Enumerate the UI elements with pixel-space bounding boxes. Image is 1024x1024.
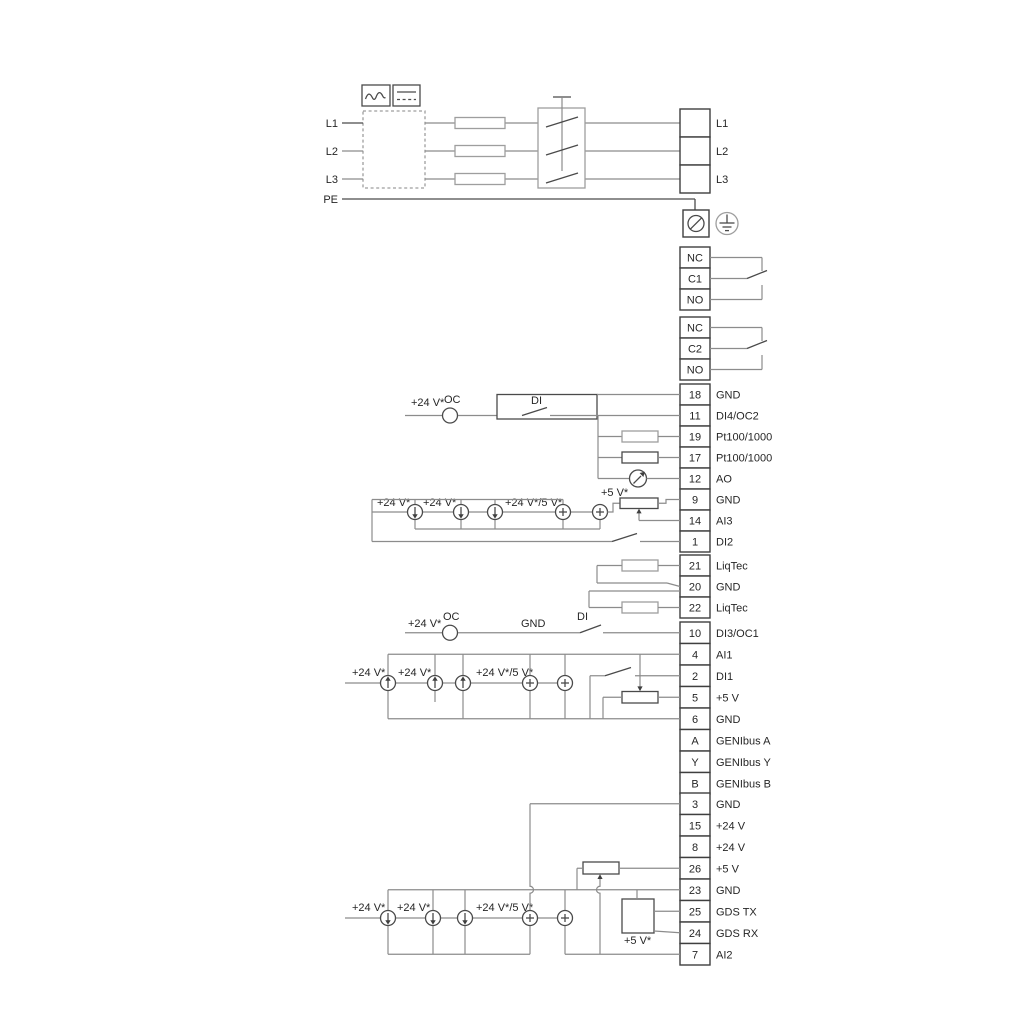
output-label-l2: L2 — [716, 146, 728, 158]
terminal-label: AO — [716, 474, 732, 486]
output-label-l1: L1 — [716, 118, 728, 130]
relay2-c2: C2 — [688, 344, 702, 356]
terminal-label: AI1 — [716, 649, 733, 661]
output-label-l3: L3 — [716, 174, 728, 186]
v24-label: +24 V* — [377, 497, 411, 509]
v24-label: +24 V* — [398, 667, 432, 679]
input-label-l1: L1 — [326, 118, 338, 130]
fuse-l2 — [455, 146, 505, 157]
terminal-label: Pt100/1000 — [716, 453, 772, 465]
v24-label: +24 V* — [423, 497, 457, 509]
input-label-l2: L2 — [326, 146, 338, 158]
ai1-sensor-group: +24 V* +24 V* +24 V*/5 V* — [345, 654, 680, 719]
wiring-diagram: L1 L2 L3 PE — [0, 0, 1024, 1024]
terminal-label: GND — [716, 885, 741, 897]
mains-input-section: L1 L2 L3 PE — [323, 85, 738, 237]
terminal-num: 14 — [689, 516, 701, 528]
current-source-plus-icon — [556, 505, 571, 520]
io-terminal-strip-b: 10 4 2 5 6 A Y B DI3/OC1 AI1 DI1 +5 V GN… — [680, 622, 771, 794]
io-terminal-strip-c: 3 15 8 26 23 25 24 7 GND +24 V +24 V +5 … — [680, 793, 759, 965]
current-source-up-icon — [428, 676, 443, 691]
terminal-num: A — [691, 735, 699, 747]
terminal-num: Y — [691, 757, 699, 769]
di3-switch — [580, 625, 601, 633]
ai3-sensor-group: +24 V* +24 V* +24 V*/5 V* +5 V* — [372, 487, 680, 542]
terminal-num: 7 — [692, 949, 698, 961]
mains-terminal-block — [680, 109, 710, 193]
relay1-block: NC C1 NO — [680, 247, 767, 310]
terminal-num: 12 — [689, 474, 701, 486]
relay1-c1: C1 — [688, 274, 702, 286]
v24-label: +24 V* — [411, 397, 445, 409]
v24-label: +24 V* — [352, 902, 386, 914]
current-source-down-icon — [381, 911, 396, 926]
terminal-label: Pt100/1000 — [716, 432, 772, 444]
v24-label: +24 V* — [352, 667, 386, 679]
terminal-label: DI3/OC1 — [716, 628, 759, 640]
terminal-label: DI1 — [716, 671, 733, 683]
relay2-block: NC C2 NO — [680, 317, 767, 380]
relay1-contact — [710, 258, 767, 300]
current-source-down-icon — [454, 505, 469, 520]
terminal-num: 22 — [689, 603, 701, 615]
v24-label: +24 V* — [397, 902, 431, 914]
terminal-label: AI3 — [716, 516, 733, 528]
screw-terminal-icon — [683, 210, 709, 237]
open-collector-icon — [443, 625, 458, 640]
terminal-num: 4 — [692, 649, 698, 661]
current-source-plus-icon — [523, 676, 538, 691]
terminal-label: GND — [716, 390, 741, 402]
terminal-num: 8 — [692, 842, 698, 854]
terminal-num: 20 — [689, 582, 701, 594]
oc-label: OC — [444, 394, 461, 406]
terminal-num: 1 — [692, 537, 698, 549]
terminal-num: 17 — [689, 453, 701, 465]
pt100-sensor-1 — [622, 431, 658, 442]
terminal-num: 23 — [689, 885, 701, 897]
v24-label: +24 V* — [408, 618, 442, 630]
gds-sensor-box — [622, 899, 654, 933]
terminal-num: 11 — [689, 411, 700, 423]
terminal-num: 19 — [689, 432, 701, 444]
liqtec-strip: 21 20 22 LiqTec GND LiqTec — [589, 555, 748, 618]
pt100-sensor-2 — [622, 452, 658, 463]
v24v5-label: +24 V*/5 V* — [505, 497, 563, 509]
relay1-nc: NC — [687, 253, 703, 265]
terminal-num: 26 — [689, 863, 701, 875]
terminal-num: 6 — [692, 714, 698, 726]
current-source-down-icon — [426, 911, 441, 926]
terminal-num: 15 — [689, 820, 701, 832]
terminal-label: DI2 — [716, 537, 733, 549]
di3-oc1-wiring: +24 V* OC GND DI — [405, 611, 680, 640]
gnd-label: GND — [521, 618, 546, 630]
terminal-label: GDS RX — [716, 928, 759, 940]
terminal-label: LiqTec — [716, 603, 748, 615]
terminal-num: B — [691, 778, 698, 790]
potentiometer-ai2 — [583, 862, 619, 874]
di-label: DI — [577, 611, 588, 623]
relay2-contact — [710, 328, 767, 370]
current-source-plus-icon — [593, 505, 608, 520]
io-terminal-strip-a: 18 11 19 17 12 9 14 1 GND DI4/OC2 Pt100/… — [680, 384, 772, 552]
pe-wire — [342, 199, 695, 210]
current-source-down-icon — [408, 505, 423, 520]
relay1-no: NO — [687, 295, 704, 307]
ac-waveform-icon — [362, 85, 390, 106]
terminal-label: GENIbus A — [716, 735, 771, 747]
terminal-label: GDS TX — [716, 906, 757, 918]
terminal-label: GND — [716, 714, 741, 726]
input-label-l3: L3 — [326, 174, 338, 186]
terminal-label: AI2 — [716, 949, 733, 961]
terminal-num: 21 — [689, 561, 701, 573]
terminal-num: 25 — [689, 906, 701, 918]
terminal-num: 24 — [689, 928, 701, 940]
current-source-up-icon — [381, 676, 396, 691]
dc-symbol-icon — [393, 85, 420, 106]
terminal-label: +5 V — [716, 863, 740, 875]
current-source-up-icon — [456, 676, 471, 691]
open-collector-icon — [443, 408, 458, 423]
meter-icon — [630, 470, 647, 487]
relay2-no: NO — [687, 365, 704, 377]
v5-label: +5 V* — [624, 935, 652, 947]
di1-switch — [605, 668, 631, 676]
terminal-label: +5 V — [716, 692, 740, 704]
di-label: DI — [531, 395, 542, 407]
liqtec-sensors — [589, 560, 680, 613]
pt100-ao-wiring — [598, 431, 680, 487]
liqtec-sensor-2 — [622, 602, 658, 613]
current-source-down-icon — [458, 911, 473, 926]
wiring-diagram-canvas: L1 L2 L3 PE — [0, 0, 1024, 1024]
relay2-nc: NC — [687, 323, 703, 335]
terminal-label: +24 V — [716, 842, 746, 854]
earth-ground-icon — [716, 213, 738, 235]
terminal-num: 5 — [692, 692, 698, 704]
disconnect-switch — [538, 97, 585, 188]
fuse-l3 — [455, 174, 505, 185]
terminal-label: GND — [716, 495, 741, 507]
current-source-plus-icon — [558, 911, 573, 926]
terminal-label: GENIbus B — [716, 778, 771, 790]
current-source-plus-icon — [558, 676, 573, 691]
oc-label: OC — [443, 611, 460, 623]
terminal-label: GENIbus Y — [716, 757, 771, 769]
v5-label: +5 V* — [601, 487, 629, 499]
terminal-num: 10 — [689, 628, 701, 640]
terminal-num: 2 — [692, 671, 698, 683]
terminal-num: 18 — [689, 390, 701, 402]
fuse-l1 — [455, 118, 505, 129]
terminal-label: +24 V — [716, 820, 746, 832]
ai2-sensor-group: +24 V* +24 V* +24 V*/5 V* +5 V* — [345, 804, 680, 955]
current-source-plus-icon — [523, 911, 538, 926]
emc-filter-box — [363, 111, 425, 188]
di2-switch — [612, 534, 637, 542]
phase-wires — [342, 123, 680, 179]
potentiometer-ai1 — [622, 692, 658, 704]
terminal-num: 3 — [692, 799, 698, 811]
terminal-label: GND — [716, 799, 741, 811]
input-label-pe: PE — [323, 194, 338, 206]
liqtec-sensor-1 — [622, 560, 658, 571]
terminal-label: LiqTec — [716, 561, 748, 573]
terminal-num: 9 — [692, 495, 698, 507]
potentiometer-ai3 — [620, 498, 658, 509]
current-source-down-icon — [488, 505, 503, 520]
terminal-label: GND — [716, 582, 741, 594]
terminal-label: DI4/OC2 — [716, 411, 759, 423]
